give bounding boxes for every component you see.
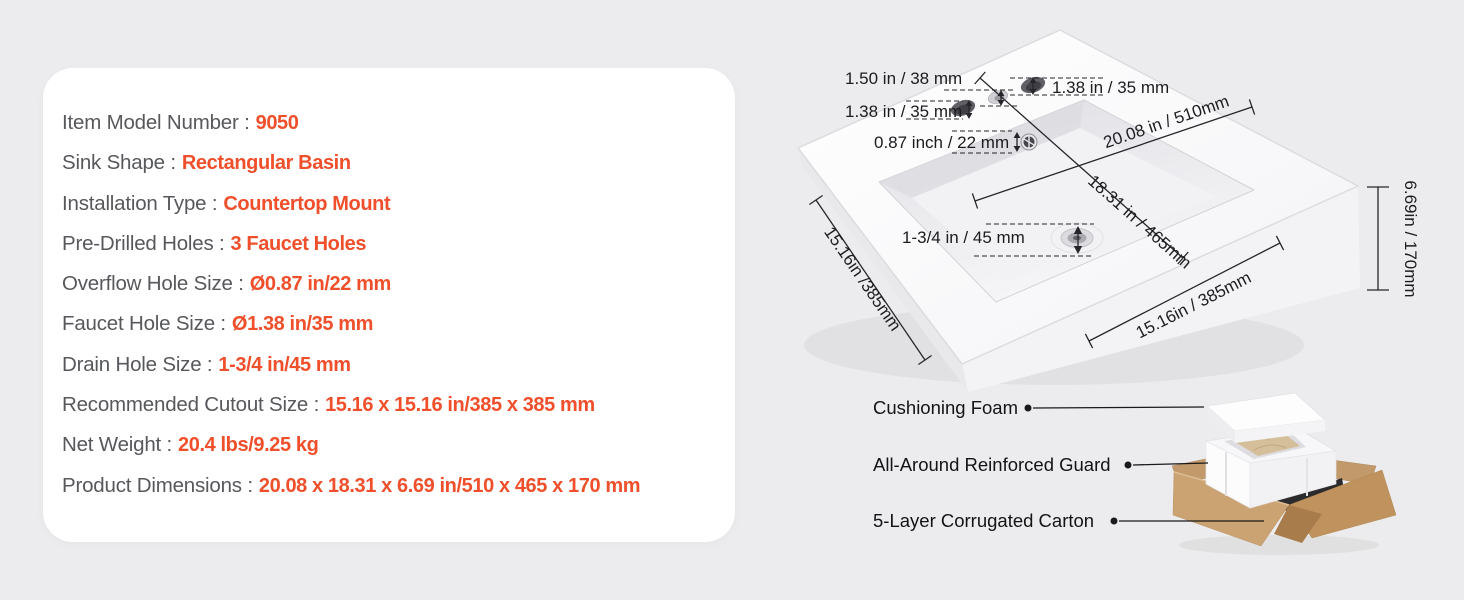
spec-row-dimensions: Product Dimensions :20.08 x 18.31 x 6.69… <box>62 466 715 506</box>
spec-value: Ø1.38 in/35 mm <box>232 313 373 335</box>
packaging-label-carton: 5-Layer Corrugated Carton <box>873 510 1094 531</box>
callout-dot <box>1111 518 1118 525</box>
spec-label: Pre-Drilled Holes : <box>62 232 225 255</box>
packaging-diagram: Cushioning Foam All-Around Reinforced Gu… <box>873 393 1396 555</box>
spec-value: 3 Faucet Holes <box>231 233 367 255</box>
spec-label: Item Model Number : <box>62 111 250 134</box>
spec-label: Product Dimensions : <box>62 474 253 497</box>
callout-dot <box>1025 405 1032 412</box>
overflow-hole <box>1021 134 1037 150</box>
spec-value: 20.4 lbs/9.25 kg <box>178 434 318 456</box>
dim-faucet-left-label: 1.38 in / 35 mm <box>845 102 962 121</box>
spec-row-model: Item Model Number :9050 <box>62 103 715 143</box>
spec-label: Installation Type : <box>62 192 217 215</box>
spec-value: 15.16 x 15.16 in/385 x 385 mm <box>325 394 595 416</box>
dim-height-label: 6.69in / 170mm <box>1401 180 1420 297</box>
spec-value: 9050 <box>256 112 299 134</box>
packaging-callout-foam: Cushioning Foam <box>873 397 1204 418</box>
dim-overflow-label: 0.87 inch / 22 mm <box>874 133 1009 152</box>
spec-card: Item Model Number :9050 Sink Shape :Rect… <box>43 68 735 542</box>
spec-value: 20.08 x 18.31 x 6.69 in/510 x 465 x 170 … <box>259 475 640 497</box>
spec-value: Countertop Mount <box>223 193 390 215</box>
spec-label: Faucet Hole Size : <box>62 312 226 335</box>
spec-row-overflow: Overflow Hole Size :Ø0.87 in/22 mm <box>62 264 715 304</box>
spec-row-holes: Pre-Drilled Holes :3 Faucet Holes <box>62 224 715 264</box>
spec-label: Net Weight : <box>62 433 172 456</box>
spec-value: Ø0.87 in/22 mm <box>250 273 391 295</box>
carton-shadow <box>1179 535 1379 555</box>
dim-height: 6.69in / 170mm <box>1367 180 1420 297</box>
spec-row-faucet: Faucet Hole Size :Ø1.38 in/35 mm <box>62 304 715 344</box>
spec-value: 1-3/4 in/45 mm <box>218 354 350 376</box>
packaging-label-foam: Cushioning Foam <box>873 397 1018 418</box>
spec-row-shape: Sink Shape :Rectangular Basin <box>62 143 715 183</box>
spec-label: Sink Shape : <box>62 151 176 174</box>
dim-hole-spacing-label: 1.50 in / 38 mm <box>845 69 962 88</box>
spec-row-cutout: Recommended Cutout Size :15.16 x 15.16 i… <box>62 385 715 425</box>
spec-row-installation: Installation Type :Countertop Mount <box>62 184 715 224</box>
dim-faucet-left: 1.38 in / 35 mm <box>845 100 972 121</box>
spec-label: Recommended Cutout Size : <box>62 393 319 416</box>
packaging-label-guard: All-Around Reinforced Guard <box>873 454 1111 475</box>
sink-diagram: 20.08 in / 510mm 18.31 in / 465mm 15.16i… <box>784 0 1464 600</box>
dim-overflow: 0.87 inch / 22 mm <box>874 131 1020 153</box>
spec-row-weight: Net Weight :20.4 lbs/9.25 kg <box>62 425 715 465</box>
spec-label: Drain Hole Size : <box>62 353 212 376</box>
packaging-callout-guard: All-Around Reinforced Guard <box>873 454 1208 475</box>
dim-drain-label: 1-3/4 in / 45 mm <box>902 228 1025 247</box>
spec-value: Rectangular Basin <box>182 152 351 174</box>
spec-label: Overflow Hole Size : <box>62 272 244 295</box>
callout-dot <box>1125 462 1132 469</box>
dim-faucet-right-label: 1.38 in / 35 mm <box>1052 78 1169 97</box>
spec-row-drain: Drain Hole Size :1-3/4 in/45 mm <box>62 345 715 385</box>
